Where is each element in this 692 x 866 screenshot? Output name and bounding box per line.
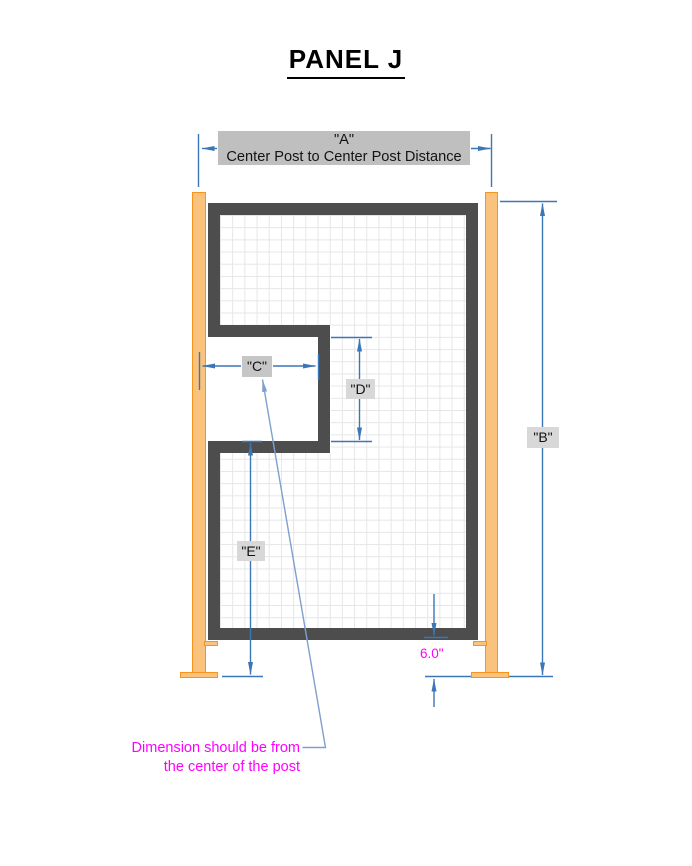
dim-b-label: "B" (533, 429, 552, 445)
dim-a-label: "A" (218, 132, 470, 149)
frame-notch-bottom-rail (208, 441, 330, 453)
page-title: PANEL J (287, 44, 405, 79)
note-line-1: Dimension should be from (100, 739, 300, 758)
frame-left-lower-rail (208, 441, 220, 640)
dim-c-label: "C" (247, 358, 267, 374)
dim-a-description: Center Post to Center Post Distance (218, 149, 470, 166)
panel-notch-cutout (220, 325, 331, 453)
dim-c-label-box: "C" (242, 356, 272, 377)
dim-e-label-box: "E" (237, 541, 265, 561)
frame-left-upper-rail (208, 203, 220, 337)
right-post (485, 192, 499, 673)
left-post-bracket (204, 641, 218, 646)
frame-top-rail (208, 203, 478, 215)
frame-notch-top-rail (208, 325, 330, 337)
panel-drawing-canvas: PANEL J "A" Center Post to Center Post D… (0, 0, 692, 866)
left-post (192, 192, 206, 673)
dim-d-label: "D" (350, 381, 370, 397)
left-post-base-plate (180, 672, 218, 678)
frame-notch-right-rail (318, 325, 330, 453)
note-line-2: the center of the post (100, 758, 300, 777)
note-text: Dimension should be from the center of t… (100, 739, 300, 777)
dim-a-label-box: "A" Center Post to Center Post Distance (218, 131, 470, 165)
dim-b-label-box: "B" (527, 427, 559, 448)
dim-six-label: 6.0" (420, 646, 444, 661)
title-area: PANEL J (0, 44, 692, 79)
right-post-bracket (473, 641, 487, 646)
frame-right-rail (466, 203, 478, 640)
right-post-base-plate (471, 672, 509, 678)
dim-d-label-box: "D" (346, 379, 375, 399)
frame-bottom-rail (208, 628, 478, 640)
dim-e-label: "E" (241, 543, 260, 559)
